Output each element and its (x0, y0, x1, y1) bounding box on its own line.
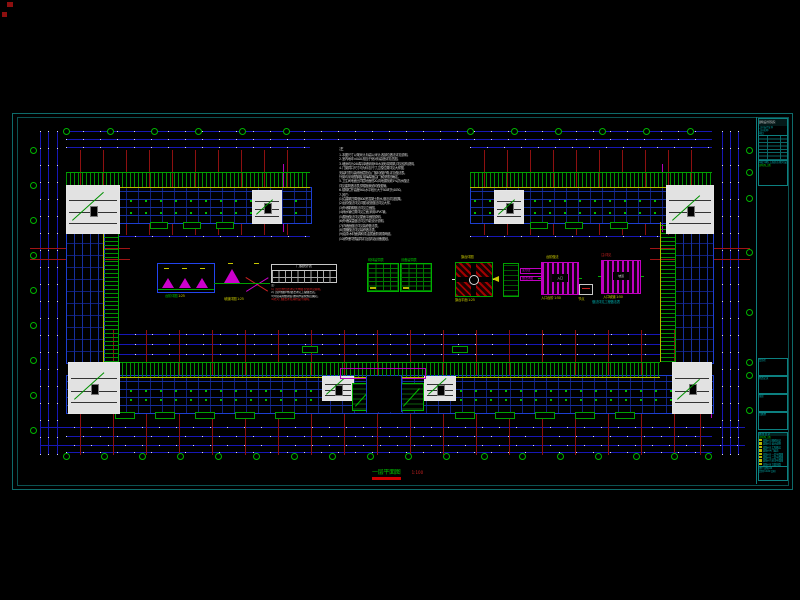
balcony-bump (495, 412, 515, 419)
stair-block (68, 362, 120, 414)
balcony-bump (235, 412, 255, 419)
balcony-bump (275, 412, 295, 419)
axis-bubble (139, 453, 146, 460)
balcony-bump (530, 222, 548, 229)
dimension-line (66, 147, 310, 148)
stair-tread-line (255, 216, 279, 217)
dim-mark (254, 263, 259, 264)
row-marker (759, 463, 762, 465)
dim-tick (641, 276, 644, 277)
ramp-triangle (224, 269, 240, 283)
ui-artifact (2, 12, 7, 17)
axis-bubble (671, 453, 678, 460)
stair-block (494, 190, 524, 224)
stair-block (252, 190, 282, 224)
balcony-bump (455, 412, 475, 419)
balcony-bump (615, 412, 635, 419)
cell-label: 备注 (759, 395, 787, 398)
dim-mark (164, 268, 169, 269)
axis-bubble (599, 128, 606, 135)
highlight-cell (370, 287, 376, 289)
axis-bubble (443, 453, 450, 460)
dimension-line (470, 236, 660, 237)
stair-door (687, 206, 695, 217)
schedule-notes: 注:1.门窗立樘位置详见大样图,安装详见说明。2.门窗均做护角,做法详见工程做法… (271, 284, 341, 302)
dimension-line (57, 131, 58, 455)
dim-tick (579, 278, 582, 279)
wall-band (675, 222, 714, 364)
stair-direction-arrow (74, 372, 104, 400)
balcony-bump (452, 346, 468, 353)
dimension-line (738, 131, 739, 455)
schedule-note-line: 4.防火门做法详见消防设计说明。 (271, 298, 341, 302)
node-detail (579, 284, 593, 295)
axis-bubble (63, 453, 70, 460)
dimension-line (470, 147, 712, 148)
stair-block (672, 362, 712, 414)
cell-label: 会签栏 (759, 359, 787, 362)
axis-bubble (30, 357, 37, 364)
balcony-bump (195, 412, 215, 419)
axis-bubble (30, 252, 37, 259)
center-label: 坡道 (613, 272, 629, 280)
caption-scale: 1:25 (178, 294, 184, 298)
center-circle (469, 275, 479, 285)
design-firm-logo: 建筑设计研究院 (759, 119, 787, 126)
flag-base-detail (455, 262, 493, 297)
dim-mark (228, 263, 233, 264)
balcony-bump (535, 412, 555, 419)
stair-door (335, 385, 343, 396)
baseline (214, 283, 270, 284)
entrance-opening (366, 376, 402, 412)
axis-bubble (595, 453, 602, 460)
axis-bubble (151, 128, 158, 135)
axis-bubble (195, 128, 202, 135)
title-block-cell: 修改记录 (758, 376, 788, 394)
sheet-list-table: 图 纸 目 录 建筑施工图 建施-01 图纸目录建施-02 设计说明建施-03 … (758, 432, 788, 481)
dimension-line (66, 452, 712, 453)
axis-bubble (557, 453, 564, 460)
stair-tread-line (675, 378, 709, 379)
axis-bubble (239, 128, 246, 135)
balcony-bump (302, 346, 318, 353)
node-mark (582, 288, 590, 289)
dimension-line (66, 139, 712, 140)
baluster-triangle (162, 278, 174, 288)
caption-text: 台阶详图 (165, 294, 177, 298)
balcony-bump (155, 412, 175, 419)
detail-caption: 旗台平面 1:25 (455, 297, 475, 302)
footer-row: 比例 1:100 日期 (759, 470, 787, 473)
axis-bubble (467, 128, 474, 135)
stair-tread-line (669, 223, 711, 224)
dimension-line (722, 131, 723, 455)
axis-bubble (30, 147, 37, 154)
cell-label: 出图章 (759, 413, 787, 416)
axis-bubble (30, 322, 37, 329)
axis-bubble (30, 392, 37, 399)
dimension-line (118, 334, 660, 335)
axis-bubble (746, 359, 753, 366)
balcony-bump (565, 222, 583, 229)
detail-caption: 坡道详图 1:25 (224, 296, 244, 301)
dim-tick (598, 276, 601, 277)
title-block-header: 建筑设计研究院 工程设计证书 工程名称 项目 审定 审核 工程负责 校对 设计 … (758, 118, 788, 186)
title-strip-divider (756, 117, 757, 484)
axis-bubble (746, 249, 753, 256)
stair-block (666, 185, 714, 234)
cad-drawing-canvas: 注 1. 本图尺寸以毫米计,标高以米计,各部位做法详见说明。2. 室内地坪±0.… (0, 0, 800, 600)
door-window-schedule: 门窗统计表 (271, 264, 337, 283)
entry-steps-detail: 入口 (541, 262, 579, 295)
ui-artifact (7, 2, 13, 7)
stair-tread-line (255, 201, 279, 202)
axis-bubble (177, 453, 184, 460)
axis-bubble (746, 195, 753, 202)
axis-bubble (746, 407, 753, 414)
axis-bubble (633, 453, 640, 460)
plan-title-text: 一层平面图 (372, 469, 401, 478)
stair-tread-line (497, 201, 521, 202)
detail-caption: 台阶详图 1:25 (165, 293, 185, 298)
baseline (158, 289, 214, 290)
window-hatch (660, 222, 676, 362)
balcony-bump (183, 222, 201, 229)
row-marker (759, 442, 762, 444)
plan-title-scale: 1:100 (412, 470, 424, 475)
axis-bubble (101, 453, 108, 460)
axis-bubble (687, 128, 694, 135)
direction-arrow (403, 388, 420, 407)
axis-bubble (283, 128, 290, 135)
arrow-left-icon (492, 276, 499, 282)
detail-step-section (157, 263, 215, 293)
caption-scale: 1:25 (237, 297, 243, 301)
axis-bubble (746, 372, 753, 379)
axis-bubble (519, 453, 526, 460)
detail-caption: 节点 (578, 296, 584, 301)
axis-bubble (63, 128, 70, 135)
stage-row: 建筑施工图 (759, 164, 787, 167)
axis-bubble (107, 128, 114, 135)
dimension-line (118, 354, 660, 355)
axis-bubble (746, 169, 753, 176)
dimension-line (48, 131, 49, 455)
axis-bubble (746, 147, 753, 154)
stair-tread-line (497, 216, 521, 217)
stair-block (424, 376, 456, 401)
stair-direction-arrow (672, 195, 700, 221)
axis-bubble (511, 128, 518, 135)
row-marker (759, 446, 762, 448)
row-marker (759, 456, 762, 458)
axis-bubble (643, 128, 650, 135)
axis-bubble (30, 287, 37, 294)
detail-caption-red: 注:详见 (601, 252, 611, 257)
caption-text: 坡道详图 (224, 297, 236, 301)
axis-bubble (705, 453, 712, 460)
green-table (400, 263, 432, 292)
dimension-line (118, 236, 310, 237)
stair-block (322, 376, 354, 401)
stair-tread-line (71, 378, 117, 379)
balcony-bump (150, 222, 168, 229)
stair-block (66, 185, 120, 234)
balcony-bump (610, 222, 628, 229)
detail-caption: 入口台阶 1:50 (541, 295, 561, 300)
detail-ramp-section (214, 263, 270, 293)
schedule-title: 门窗统计表 (272, 265, 336, 269)
stair-direction-arrow (72, 192, 104, 221)
axis-bubble (30, 427, 37, 434)
title-block-cell: 会签栏 (758, 358, 788, 376)
baluster-triangle (196, 278, 208, 288)
title-block-cell: 出图章 (758, 412, 788, 430)
detail-caption: 台阶做法 (546, 254, 558, 259)
signature-grid (759, 135, 787, 161)
axis-bubble (481, 453, 488, 460)
plan-title: 一层平面图 1:100 (372, 459, 423, 478)
general-notes-block: 注 1. 本图尺寸以毫米计,标高以米计,各部位做法详见说明。2. 室内地坪±0.… (339, 147, 451, 241)
balcony-bump (216, 222, 234, 229)
row-marker (759, 453, 762, 455)
entry-ramp-detail: 坡道 (601, 260, 641, 294)
cell-label: 修改记录 (759, 377, 787, 380)
dimension-line (66, 436, 712, 437)
axis-bubble (215, 453, 222, 460)
balcony-bump (575, 412, 595, 419)
dim-tick (452, 279, 455, 280)
row-marker (759, 439, 762, 441)
dim-tick (538, 278, 541, 279)
baluster-triangle (179, 278, 191, 288)
dimension-line (730, 131, 731, 455)
stair-tread-line (69, 223, 117, 224)
dimension-line (66, 131, 712, 132)
row-marker (759, 459, 762, 461)
axis-bubble (746, 309, 753, 316)
wall-band (66, 222, 105, 364)
dimension-line (118, 344, 660, 345)
table-title: 砌体留洞表 (368, 257, 383, 262)
stair-door (437, 385, 445, 396)
axis-bubble (30, 217, 37, 224)
detail-caption-cyan: 做法详见工程做法表 (592, 299, 620, 304)
axis-bubble (555, 128, 562, 135)
schedule-grid (272, 270, 336, 283)
dimension-line (40, 131, 41, 455)
notes-lines: 1. 本图尺寸以毫米计,标高以米计,各部位做法详见说明。2. 室内地坪±0.00… (339, 153, 451, 241)
stair-tread-line (669, 200, 711, 201)
highlight-cell (403, 287, 409, 289)
joint-detail (503, 263, 519, 297)
table-title: 设备留洞表 (401, 257, 416, 262)
row-marker (759, 449, 762, 451)
hatched-box (400, 383, 424, 411)
sheet-list-rows: 建施-01 图纸目录建施-02 设计说明建施-03 工程做法建施-04 门窗表建… (759, 439, 787, 466)
title-block-cell: 备注 (758, 394, 788, 412)
axis-bubble (329, 453, 336, 460)
axis-bubble (30, 182, 37, 189)
dim-mark (182, 268, 187, 269)
green-table (367, 263, 399, 292)
window-hatch (103, 222, 119, 362)
detail-caption: 旗台详图 (461, 254, 473, 259)
axis-bubble (291, 453, 298, 460)
stair-door (91, 384, 99, 395)
dim-mark (200, 268, 205, 269)
note-line: (10)预埋件预留洞详见结构及设备图纸。 (339, 237, 451, 241)
stair-tread-line (71, 402, 117, 403)
axis-bubble (253, 453, 260, 460)
center-label: 入口 (552, 274, 568, 282)
stair-tread-line (675, 402, 709, 403)
stair-door (90, 206, 98, 217)
